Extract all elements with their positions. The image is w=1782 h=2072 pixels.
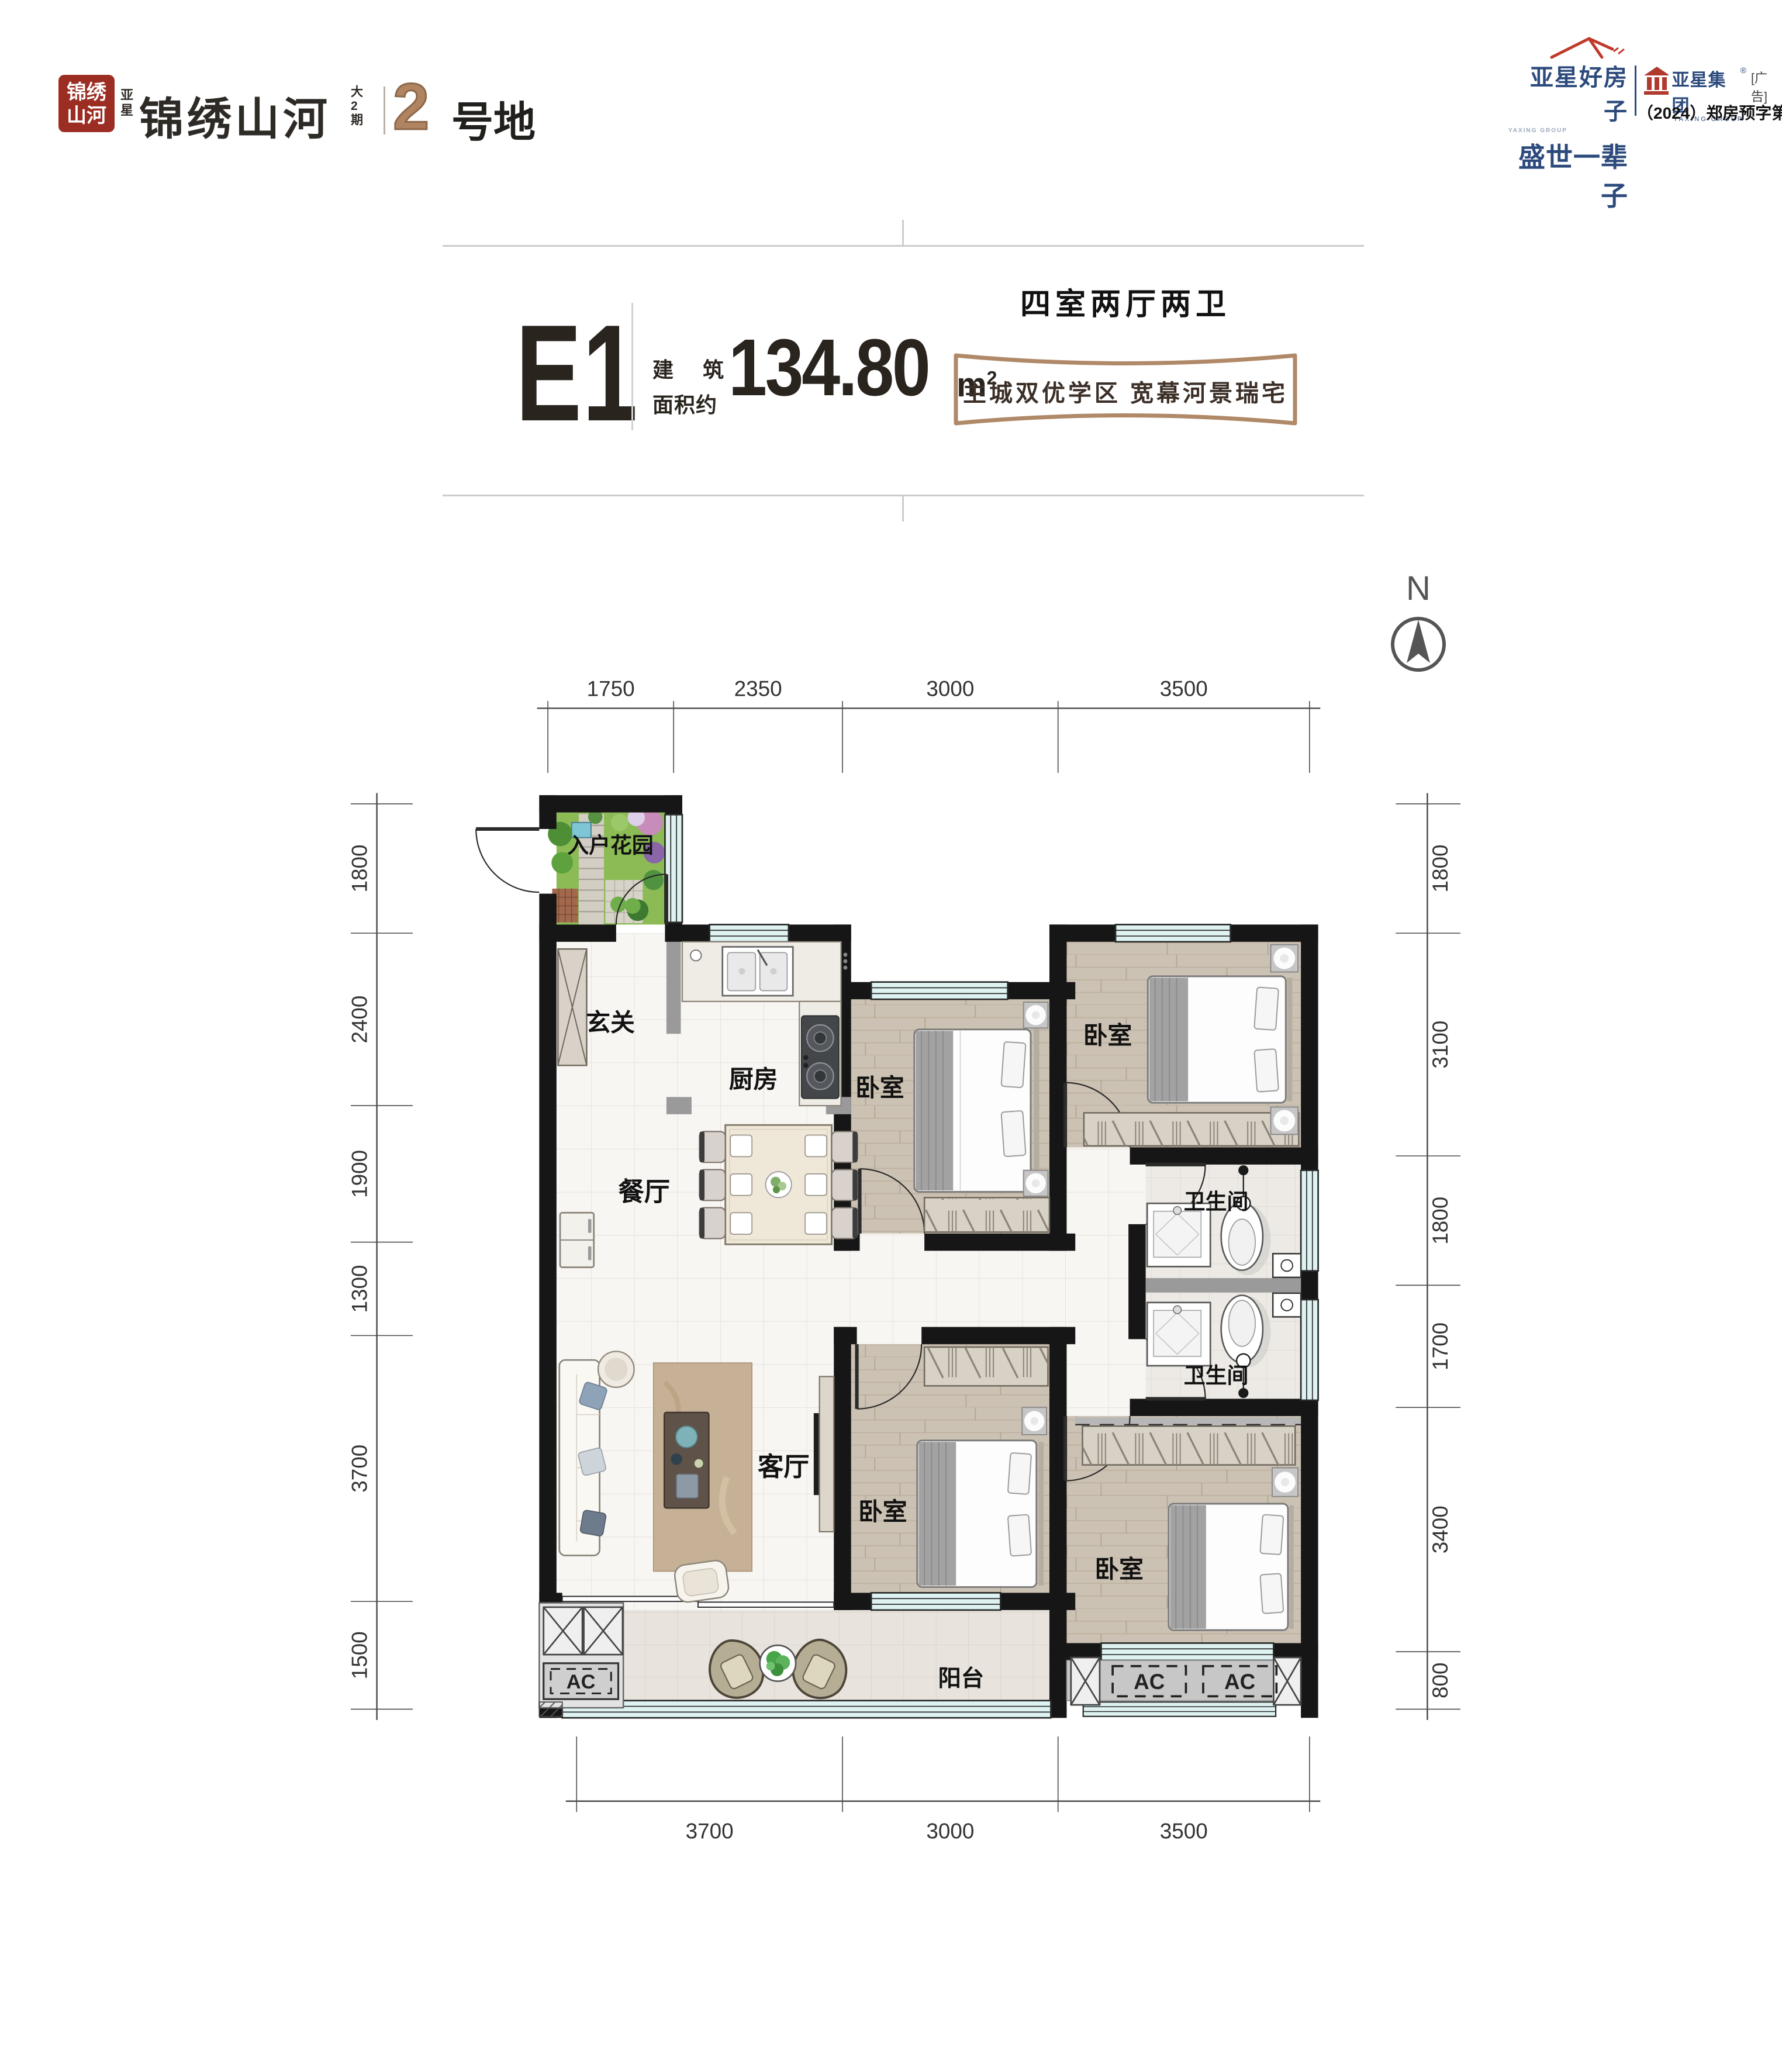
- bed-4: [1169, 1504, 1294, 1630]
- ac-unit-label: AC: [1224, 1670, 1255, 1694]
- header-tick-top: [902, 220, 904, 246]
- label-balcony: 阳台: [938, 1666, 984, 1691]
- nightstand: [1022, 1407, 1047, 1435]
- brand-slogan: 亚星好房子 YAXING GROUP 盛世一辈子: [1508, 58, 1628, 213]
- slogan-line2: 盛世一辈子: [1508, 136, 1628, 213]
- sofa: [560, 1360, 608, 1555]
- area-label-1a: 建: [652, 353, 674, 384]
- roof-sketch-icon: [1543, 34, 1643, 61]
- window-kitchen-top: [710, 924, 789, 941]
- project-logo-name: 锦绣山河: [139, 83, 331, 147]
- hatch-band: [539, 1702, 562, 1717]
- floorplan-page: 锦绣 山河 亚 星 锦绣山河 大 2 期 2 号地 亚星好房子 YAXING G…: [0, 0, 1782, 2072]
- window-bedroom2-top: [871, 982, 1008, 999]
- label-bedroom-3: 卧室: [858, 1498, 907, 1525]
- window-ac-bottom: [1083, 1702, 1276, 1717]
- ac-unit-label: AC: [567, 1671, 596, 1693]
- plant-table: [760, 1645, 796, 1681]
- bed-3: [917, 1441, 1044, 1587]
- seal-text-1: 锦绣: [58, 81, 115, 104]
- ad-tag: [广告]: [1751, 68, 1782, 105]
- area-label-1b: 筑: [703, 353, 724, 384]
- window-bath1-right: [1301, 1170, 1318, 1271]
- logo-suffix-char3: 期: [351, 113, 363, 127]
- bedroom2-furniture: [914, 1002, 1049, 1232]
- label-kitchen: 厨房: [729, 1065, 778, 1093]
- window-bedroom3-bottom: [871, 1593, 1000, 1610]
- dim-top-2: 2350: [734, 677, 782, 701]
- ac-platform-left: AC: [539, 1603, 623, 1717]
- dim-right-6: 800: [1428, 1663, 1452, 1699]
- dim-bottom-3: 3500: [1160, 1819, 1208, 1843]
- logo-prefix: 亚 星: [120, 88, 133, 118]
- title-divider: [631, 303, 633, 430]
- armchair: [674, 1559, 730, 1604]
- header-tick-bottom: [902, 496, 904, 522]
- house-icon: [1644, 65, 1669, 96]
- plot-label: 号地: [451, 88, 536, 149]
- logo-suffix-char2: 2: [351, 99, 363, 113]
- presale-permit: （2024）郑房预字第5808号: [1637, 101, 1782, 124]
- label-bedroom-2: 卧室: [855, 1074, 904, 1101]
- nightstand: [1270, 1107, 1298, 1135]
- ac-unit-label: AC: [1134, 1670, 1165, 1694]
- area-label-2: 面积约: [652, 388, 724, 419]
- slogan-small: YAXING GROUP: [1508, 127, 1628, 134]
- window-balcony-bottom: [562, 1701, 1051, 1718]
- dim-left-2: 2400: [351, 996, 371, 1044]
- bed-1: [1148, 976, 1292, 1103]
- coffee-table: [664, 1413, 709, 1508]
- logo-suffix-char1: 大: [351, 85, 363, 99]
- label-bath-1: 卫生间: [1184, 1190, 1249, 1214]
- dim-left-1: 1800: [351, 845, 371, 893]
- dim-right-2: 3100: [1428, 1021, 1452, 1069]
- logo-divider: [384, 87, 385, 134]
- compass-n: N: [1406, 569, 1431, 607]
- area-label: 建 筑 面积约: [652, 353, 724, 419]
- unit-code: E1: [516, 304, 638, 441]
- label-bath-2: 卫生间: [1184, 1363, 1249, 1387]
- dim-left-3: 1900: [351, 1150, 371, 1198]
- dim-left-6: 1500: [351, 1631, 371, 1679]
- area-value: 134.80: [728, 327, 928, 408]
- label-bedroom-1: 卧室: [1083, 1021, 1132, 1049]
- dim-top-1: 1750: [587, 677, 635, 701]
- entry-door: [476, 829, 539, 892]
- label-dining: 餐厅: [619, 1177, 670, 1206]
- floor-plan: 1750 2350 3000 3500 3700 3000 3500 1800 …: [351, 672, 1497, 1871]
- label-garden: 入户花园: [567, 833, 653, 857]
- label-bedroom-4: 卧室: [1094, 1556, 1144, 1583]
- dining-set: [699, 1125, 857, 1244]
- label-living: 客厅: [758, 1453, 809, 1482]
- dim-right-4: 1700: [1428, 1322, 1452, 1370]
- compass-icon: N: [1380, 566, 1462, 689]
- bed-2: [914, 1028, 1039, 1193]
- brand-divider: [1635, 65, 1636, 116]
- window-bedroom4-bottom: [1101, 1643, 1273, 1660]
- dim-bottom-2: 3000: [926, 1819, 974, 1843]
- seal-text-2: 山河: [58, 104, 115, 127]
- dim-left-5: 3700: [351, 1445, 371, 1493]
- nightstand: [1024, 1002, 1048, 1028]
- window-bath2-right: [1301, 1300, 1318, 1400]
- dim-right-5: 3400: [1428, 1505, 1452, 1553]
- slogan-line1: 亚星好房子: [1508, 58, 1628, 126]
- logo-suffix: 大 2 期: [351, 85, 363, 127]
- fridge: [560, 1213, 594, 1267]
- brand-seal-icon: 锦绣 山河: [58, 75, 115, 132]
- dim-right-3: 1800: [1428, 1197, 1452, 1245]
- registered-mark: ®: [1740, 65, 1746, 75]
- label-foyer: 玄关: [586, 1009, 635, 1036]
- tagline-text: 主城双优学区 宽幕河景瑞宅: [952, 374, 1299, 408]
- ac-hatch-box: [544, 1607, 623, 1655]
- dim-right-1: 1800: [1428, 845, 1452, 893]
- plot-number: 2: [393, 69, 429, 144]
- nightstand: [1024, 1170, 1048, 1196]
- window-bedroom1-top: [1116, 924, 1231, 941]
- logo-prefix-char2: 星: [120, 103, 133, 118]
- logo-prefix-char1: 亚: [120, 88, 133, 103]
- kitchen-sink: [723, 947, 793, 996]
- layout-title: 四室两厅两卫: [952, 279, 1299, 323]
- nightstand: [1272, 1468, 1298, 1497]
- nightstand: [1270, 945, 1298, 972]
- foyer-wardrobe: [558, 949, 586, 1065]
- dim-left-4: 1300: [351, 1265, 371, 1313]
- bedroom3-furniture: [917, 1347, 1048, 1587]
- dim-top-4: 3500: [1160, 677, 1208, 701]
- kitchen-stove: [802, 1016, 839, 1098]
- ac-platform-right: AC AC: [1066, 1657, 1301, 1705]
- dim-bottom-1: 3700: [686, 1819, 734, 1843]
- dim-top-3: 3000: [926, 677, 974, 701]
